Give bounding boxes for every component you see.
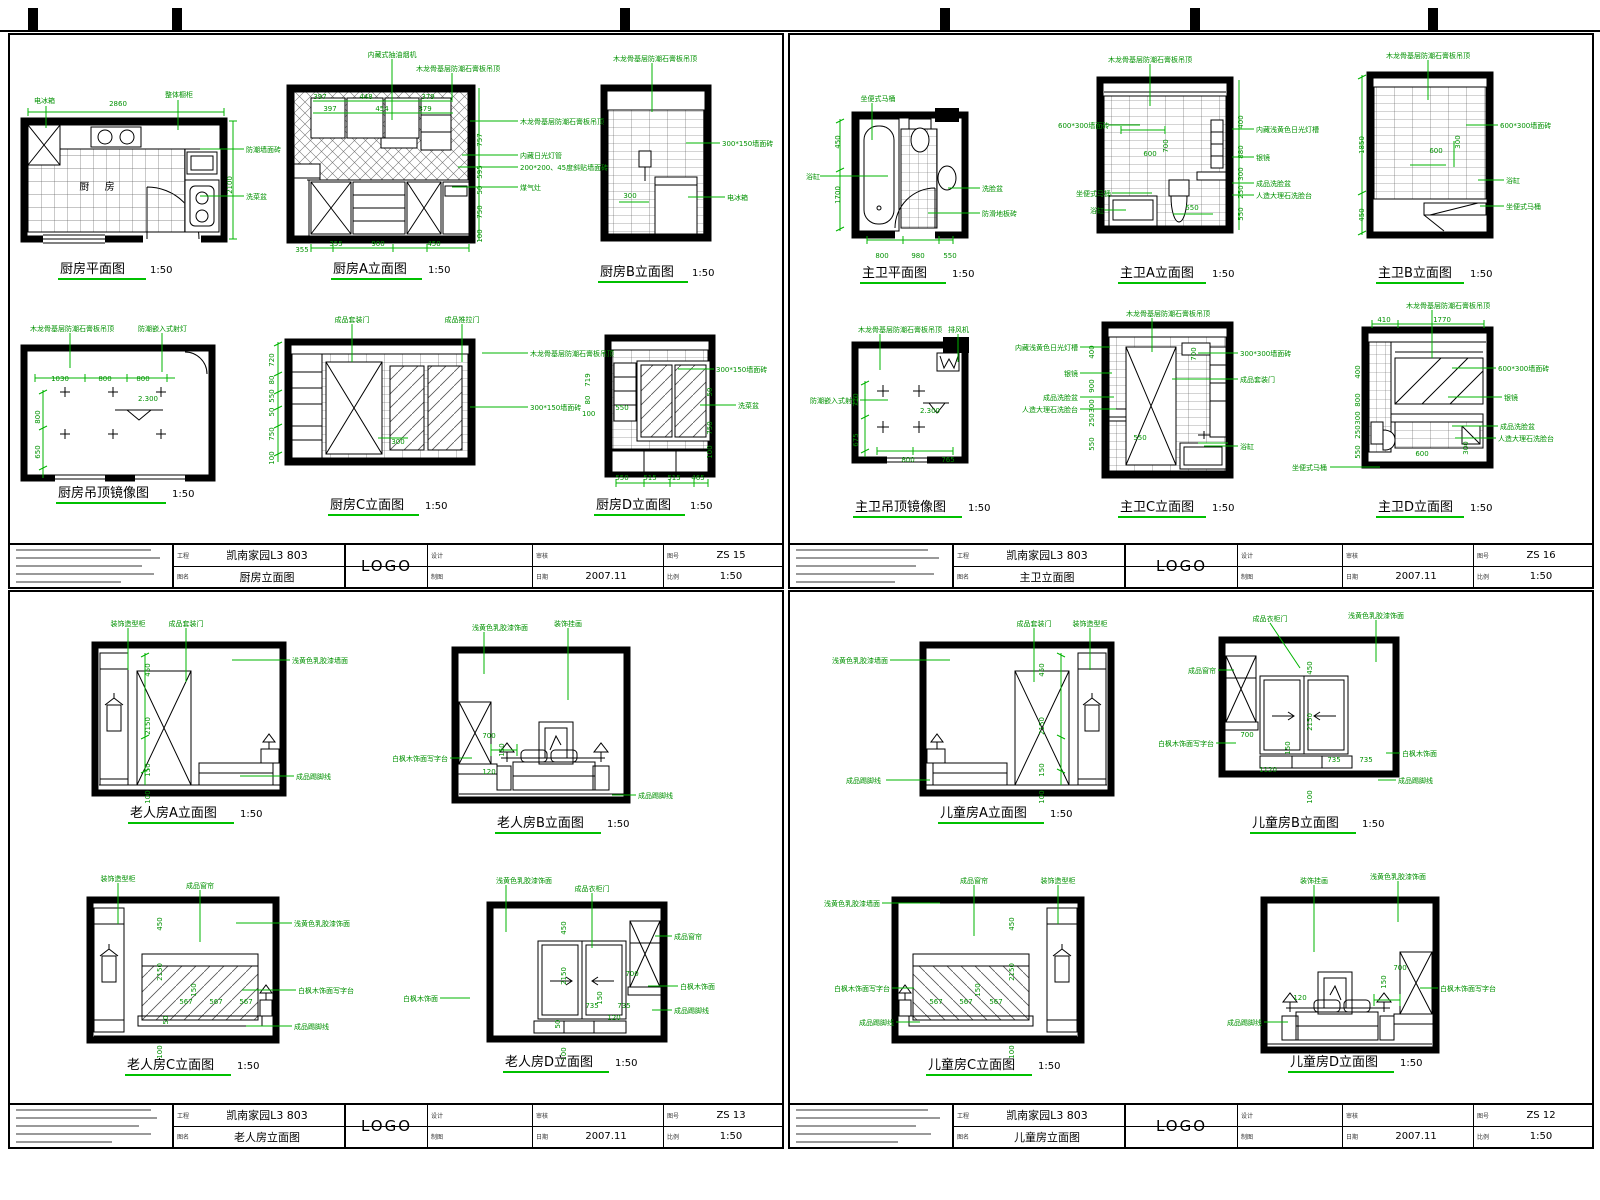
project-name: 凯南家园L3 803 — [1006, 547, 1088, 563]
date-cell: 审核 日期2007.11 — [533, 545, 664, 587]
field-label: 制图 — [1241, 572, 1253, 581]
fig-kitchen-elev-d — [595, 325, 735, 495]
field-label: 图号 — [667, 1111, 679, 1120]
field-label: 图号 — [1477, 1111, 1489, 1120]
fig-kitchen-ceiling-plan — [15, 330, 245, 495]
number-cell: 图号ZS 15 比例1:50 — [664, 545, 782, 587]
fig-kitchen-elev-a — [283, 58, 488, 258]
sheet-number: ZS 16 — [1526, 550, 1555, 561]
fig-masterbath-elev-d — [1358, 318, 1508, 478]
date-value: 2007.11 — [1395, 1131, 1436, 1142]
logo-cell: LOGO — [1126, 1105, 1238, 1147]
drawing-title: 儿童房立面图 — [1014, 1129, 1080, 1145]
sheet-scale: 1:50 — [1530, 571, 1552, 582]
number-cell: 图号ZS 13 比例1:50 — [664, 1105, 782, 1147]
field-label: 比例 — [667, 1132, 679, 1141]
fig-elderly-elev-b — [443, 638, 643, 813]
project-cell: 工程凯南家园L3 803 图名厨房立面图 — [174, 545, 346, 587]
fig-masterbath-elev-b — [1358, 63, 1508, 248]
field-label: 制图 — [1241, 1132, 1253, 1141]
fig-children-elev-c — [883, 888, 1093, 1053]
fig-masterbath-elev-c — [1098, 313, 1243, 485]
fig-kitchen-plan — [15, 90, 255, 280]
field-label: 制图 — [431, 572, 443, 581]
field-label: 工程 — [957, 1111, 969, 1120]
date-value: 2007.11 — [585, 1131, 626, 1142]
sheet-top-mark — [940, 8, 950, 30]
sheet-scale: 1:50 — [720, 571, 742, 582]
date-value: 2007.11 — [585, 571, 626, 582]
field-label: 工程 — [177, 1111, 189, 1120]
field-label: 审核 — [1346, 551, 1358, 560]
sheet-number: ZS 15 — [716, 550, 745, 561]
field-label: 审核 — [1346, 1111, 1358, 1120]
field-label: 设计 — [1241, 551, 1253, 560]
sheet-number: ZS 13 — [716, 1110, 745, 1121]
field-label: 设计 — [431, 551, 443, 560]
fig-masterbath-ceiling-plan — [843, 333, 993, 483]
fig-elderly-elev-a — [83, 633, 298, 808]
notes-cell — [10, 545, 174, 587]
logo-text: LOGO — [361, 557, 412, 575]
field-label: 图名 — [957, 1132, 969, 1141]
notes-cell — [790, 1105, 954, 1147]
date-value: 2007.11 — [1395, 571, 1436, 582]
title-block-elderly: 工程凯南家园L3 803 图名老人房立面图 LOGO 设计 制图 审核 日期20… — [10, 1103, 782, 1147]
date-cell: 审核 日期2007.11 — [533, 1105, 664, 1147]
number-cell: 图号ZS 12 比例1:50 — [1474, 1105, 1592, 1147]
logo-text: LOGO — [1156, 557, 1207, 575]
field-label: 审核 — [536, 1111, 548, 1120]
field-label: 图号 — [667, 551, 679, 560]
cad-sheet: { "titleblock_labels":{"project":"工程","d… — [0, 0, 1600, 1200]
sign-cell: 设计 制图 — [428, 1105, 533, 1147]
field-label: 工程 — [177, 551, 189, 560]
sheet-number: ZS 12 — [1526, 1110, 1555, 1121]
logo-cell: LOGO — [346, 545, 428, 587]
sheet-top-mark — [1428, 8, 1438, 30]
project-cell: 工程凯南家园L3 803 图名老人房立面图 — [174, 1105, 346, 1147]
field-label: 日期 — [1346, 572, 1358, 581]
fig-masterbath-plan — [828, 100, 998, 275]
drawing-title: 老人房立面图 — [234, 1129, 300, 1145]
project-name: 凯南家园L3 803 — [226, 547, 308, 563]
notes-cell — [790, 545, 954, 587]
field-label: 制图 — [431, 1132, 443, 1141]
field-label: 比例 — [1477, 572, 1489, 581]
title-block-masterbath: 工程凯南家园L3 803 图名主卫立面图 LOGO 设计 制图 审核 日期200… — [790, 543, 1592, 587]
project-cell: 工程凯南家园L3 803 图名儿童房立面图 — [954, 1105, 1126, 1147]
title-block-children: 工程凯南家园L3 803 图名儿童房立面图 LOGO 设计 制图 审核 日期20… — [790, 1103, 1592, 1147]
sheet-top-mark — [1190, 8, 1200, 30]
fig-children-elev-a — [908, 633, 1123, 808]
fig-elderly-elev-c — [78, 888, 288, 1053]
sheet-top-mark — [172, 8, 182, 30]
sign-cell: 设计 制图 — [1238, 1105, 1343, 1147]
field-label: 比例 — [667, 572, 679, 581]
sign-cell: 设计 制图 — [428, 545, 533, 587]
field-label: 比例 — [1477, 1132, 1489, 1141]
sheet-scale: 1:50 — [720, 1131, 742, 1142]
logo-text: LOGO — [361, 1117, 412, 1135]
field-label: 工程 — [957, 551, 969, 560]
project-name: 凯南家园L3 803 — [1006, 1107, 1088, 1123]
number-cell: 图号ZS 16 比例1:50 — [1474, 545, 1592, 587]
sign-cell: 设计 制图 — [1238, 545, 1343, 587]
field-label: 日期 — [536, 572, 548, 581]
fig-kitchen-elev-c — [258, 330, 493, 470]
drawing-title: 主卫立面图 — [1020, 569, 1075, 585]
logo-text: LOGO — [1156, 1117, 1207, 1135]
date-cell: 审核 日期2007.11 — [1343, 1105, 1474, 1147]
sheet-top-mark — [620, 8, 630, 30]
field-label: 设计 — [431, 1111, 443, 1120]
fig-children-elev-b — [1198, 628, 1408, 788]
notes-cell — [10, 1105, 174, 1147]
field-label: 设计 — [1241, 1111, 1253, 1120]
sheet-top-line — [0, 30, 1600, 32]
field-label: 图名 — [177, 572, 189, 581]
field-label: 图号 — [1477, 551, 1489, 560]
title-block-kitchen: 工程凯南家园L3 803 图名厨房立面图 LOGO 设计 制图 审核 日期200… — [10, 543, 782, 587]
sheet-scale: 1:50 — [1530, 1131, 1552, 1142]
date-cell: 审核 日期2007.11 — [1343, 545, 1474, 587]
project-name: 凯南家园L3 803 — [226, 1107, 308, 1123]
fig-children-elev-d — [1248, 888, 1448, 1063]
logo-cell: LOGO — [1126, 545, 1238, 587]
field-label: 图名 — [177, 1132, 189, 1141]
project-cell: 工程凯南家园L3 803 图名主卫立面图 — [954, 545, 1126, 587]
field-label: 日期 — [536, 1132, 548, 1141]
fig-elderly-elev-d — [478, 893, 688, 1053]
drawing-title: 厨房立面图 — [240, 569, 295, 585]
field-label: 日期 — [1346, 1132, 1358, 1141]
field-label: 审核 — [536, 551, 548, 560]
logo-cell: LOGO — [346, 1105, 428, 1147]
fig-kitchen-elev-b — [595, 55, 730, 255]
sheet-top-mark — [28, 8, 38, 30]
fig-masterbath-elev-a — [1093, 68, 1243, 243]
field-label: 图名 — [957, 572, 969, 581]
